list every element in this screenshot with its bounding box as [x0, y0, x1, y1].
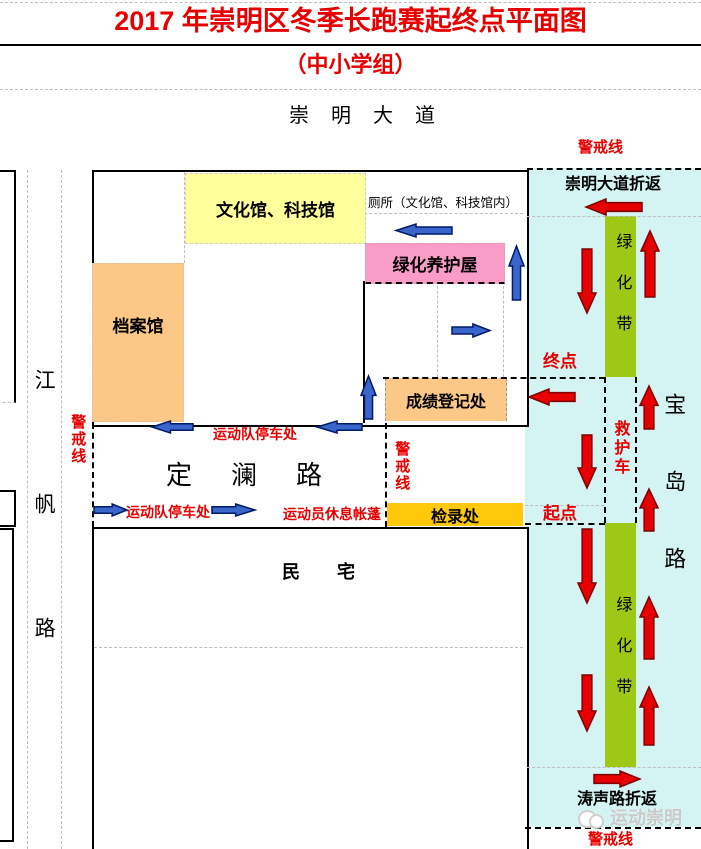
subtitle-group: （中小学组）	[0, 52, 701, 77]
ambulance-lane-right-border	[635, 377, 637, 523]
cordon-line-label-mid: 警戒线	[393, 441, 410, 492]
start-point-label: 起点	[543, 504, 577, 524]
route-arrow-left-icon	[529, 389, 575, 405]
west-building-lower	[0, 528, 14, 842]
road-label-dinglan: 定澜路	[166, 461, 361, 491]
route-arrow-up-icon	[640, 489, 658, 531]
route-arrow-down-icon	[578, 249, 596, 313]
green-belt-upper-label: 绿化带	[612, 233, 630, 356]
check-in-label: 检录处	[431, 503, 479, 527]
residential-label: 民宅	[282, 562, 392, 583]
turnaround-lane-line	[527, 216, 701, 217]
jiangfan-road-edge-east	[61, 170, 62, 849]
route-arrow-right-icon	[594, 771, 640, 787]
flow-arrow-up-icon	[361, 376, 376, 419]
ambulance-label: 救护车	[610, 420, 628, 477]
cordon-line-label-bottom: 警戒线	[588, 831, 633, 848]
venue-inner-line-4	[437, 281, 438, 377]
finish-dashed-line	[383, 377, 605, 379]
route-arrow-up-icon	[640, 386, 658, 429]
archives-label: 档案馆	[113, 312, 164, 337]
jiangfan-road-edge-west	[27, 170, 28, 849]
archives-hall: 档案馆	[92, 263, 184, 422]
header-divider	[0, 89, 701, 90]
ambulance-lane-left-border	[604, 377, 606, 523]
taosheng-lane-line	[527, 767, 701, 768]
venue-inner-line-2	[364, 213, 523, 214]
green-belt-lower-label: 绿化带	[612, 596, 630, 719]
flow-arrow-left-icon	[396, 224, 452, 237]
score-registration: 成绩登记处	[385, 378, 507, 421]
west-building-middle	[0, 490, 16, 527]
watermark-text: 运动崇明	[610, 808, 682, 829]
check-in-station: 检录处	[387, 503, 523, 526]
west-building-upper	[0, 170, 16, 403]
flow-arrow-right-icon	[452, 324, 490, 337]
culture-tech-hall: 文化馆、科技馆	[185, 173, 366, 244]
route-arrow-down-icon	[578, 529, 596, 603]
top-edge-line	[0, 2, 701, 3]
road-label-baodao: 宝岛路	[661, 393, 686, 624]
route-arrow-left-icon	[586, 199, 642, 215]
culture-tech-hall-label: 文化馆、科技馆	[216, 196, 335, 221]
cordon-line-label-top: 警戒线	[578, 139, 623, 156]
team-parking-label-top: 运动队停车处	[213, 426, 297, 442]
flow-arrow-up-icon	[509, 246, 524, 300]
title-divider	[0, 44, 701, 46]
route-arrow-down-icon	[578, 435, 596, 488]
toilet-note: 厕所（文化馆、科技馆内）	[368, 196, 518, 210]
dinglan-cordon-right	[385, 423, 387, 527]
sport-chongming-logo-icon	[578, 806, 604, 828]
page-title: 2017 年崇明区冬季长跑赛起终点平面图	[0, 6, 701, 37]
flow-arrow-right-icon	[212, 504, 255, 516]
flow-arrow-left-icon	[317, 421, 362, 433]
score-registration-label: 成绩登记处	[406, 388, 486, 412]
team-parking-label-bottom: 运动队停车处	[126, 504, 210, 520]
road-label-chongming-avenue: 崇明大道	[289, 105, 457, 128]
finish-point-label: 终点	[543, 352, 577, 372]
route-arrow-down-icon	[578, 675, 596, 731]
venue-inner-line-5	[503, 281, 504, 377]
route-arrow-up-icon	[640, 687, 658, 745]
green-maintenance-label: 绿化养护屋	[393, 251, 478, 276]
road-label-jiangfan: 江帆路	[31, 369, 55, 741]
athlete-rest-tent-label: 运动员休息帐蓬	[283, 506, 381, 522]
flow-arrow-left-icon	[152, 421, 193, 433]
green-maintenance-house: 绿化养护屋	[365, 243, 505, 284]
cordon-dashed-top	[527, 168, 701, 170]
chongming-turnaround-label: 崇明大道折返	[565, 176, 661, 194]
cordon-line-label-left: 警戒线	[69, 414, 86, 465]
race-course-map: 2017 年崇明区冬季长跑赛起终点平面图 （中小学组） 崇明大道 警戒线 崇明大…	[0, 0, 701, 849]
flow-arrow-right-icon	[94, 504, 127, 516]
route-arrow-up-icon	[640, 597, 658, 659]
route-arrow-up-icon	[641, 231, 659, 297]
residential-inner-line	[94, 647, 523, 648]
